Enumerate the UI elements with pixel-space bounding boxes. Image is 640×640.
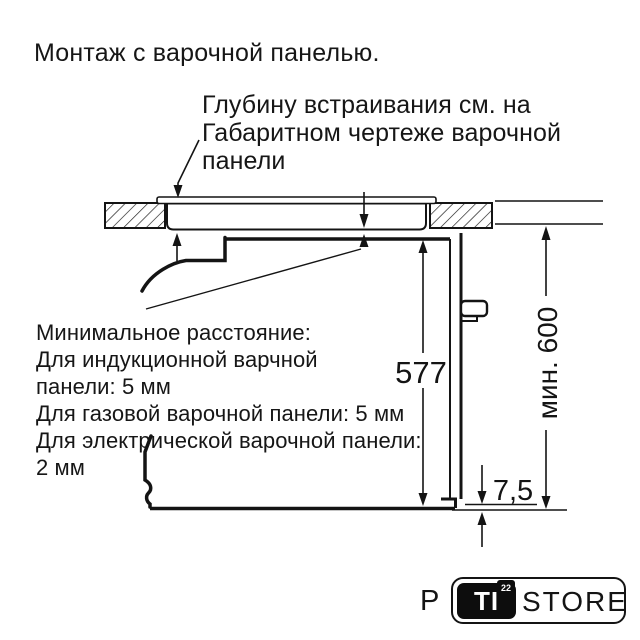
embed-depth-leader-arrow [174, 140, 200, 198]
oven-rear-wall-foot [441, 499, 456, 508]
oven-front-lower [145, 436, 151, 507]
installation-diagram: 577 мин. 600 7,5 [0, 0, 640, 640]
dimension-577: 577 [395, 240, 447, 506]
countertop-left-section [105, 203, 165, 228]
dimension-7-5: 7,5 [478, 465, 534, 547]
hob-panel-lip [157, 197, 436, 204]
countertop-surface-lines [495, 201, 603, 224]
dimension-7-5-label: 7,5 [493, 475, 533, 507]
dimension-min-600-label: мин. 600 [532, 307, 563, 420]
countertop-right-section [430, 203, 492, 228]
hob-panel-body [167, 204, 426, 230]
mounting-bracket [461, 301, 487, 321]
installation-manual-page: Монтаж с варочной панелью. Глубину встра… [0, 0, 640, 640]
min-gap-left-arrow [173, 233, 182, 261]
dimension-577-label: 577 [395, 355, 447, 390]
oven-front-top [142, 238, 225, 292]
dimension-min-600: мин. 600 [532, 226, 563, 509]
